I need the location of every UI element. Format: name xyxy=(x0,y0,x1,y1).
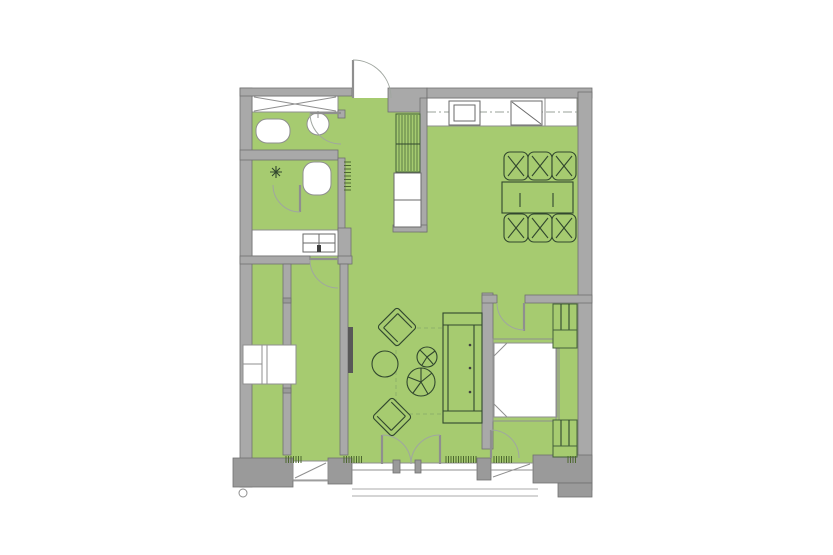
bedroom-nightstand-bottom xyxy=(553,446,577,457)
closet-room-wall-opening-2 xyxy=(283,388,291,393)
exterior-wall-top-right xyxy=(427,88,592,98)
floor-plan-svg xyxy=(0,0,833,555)
sofa-button-2 xyxy=(469,367,472,370)
sofa-button-1 xyxy=(469,344,472,347)
hall-cabinet-upper xyxy=(394,173,421,200)
bedroom-partition-wall xyxy=(482,293,493,449)
sofa-button-3 xyxy=(469,391,472,394)
floor-plan-canvas xyxy=(0,0,833,555)
bed-mattress xyxy=(494,343,557,417)
small-room-living-wall xyxy=(340,264,348,455)
rooms-top-wall-right xyxy=(338,256,352,264)
entry-threshold xyxy=(352,88,388,98)
bedroom-nightstand-top xyxy=(553,330,577,348)
closet-room-wall-opening-1 xyxy=(283,298,291,303)
wc-bottom-wall xyxy=(240,150,338,160)
bottom-wall-right-block xyxy=(533,455,592,483)
bedroom-top-wall xyxy=(525,295,592,303)
bottom-wall-left-block xyxy=(233,458,293,487)
bottom-wall-right-step xyxy=(558,483,592,497)
exterior-wall-right xyxy=(578,92,592,490)
wc-toilet xyxy=(256,119,290,143)
washing-machine-knob xyxy=(317,245,321,252)
bedroom-wardrobe-bottom xyxy=(553,420,577,446)
bedroom-top-wall-stub xyxy=(482,295,497,303)
window-mullion-2 xyxy=(415,460,421,473)
bathroom-right-wall xyxy=(338,158,345,232)
sofa xyxy=(443,313,482,423)
dining-table xyxy=(502,182,573,213)
bathroom-toilet xyxy=(303,162,331,195)
bedroom-wardrobe-top xyxy=(553,304,577,330)
tv-unit xyxy=(348,327,353,373)
site-marker xyxy=(239,489,247,497)
exterior-wall-top-left xyxy=(240,88,352,96)
window-mullion-1 xyxy=(393,460,400,473)
side-table xyxy=(372,351,398,377)
bottom-wall-pier-1 xyxy=(328,458,352,484)
rooms-top-wall-left xyxy=(240,256,310,264)
bottom-wall-pier-2 xyxy=(477,458,491,480)
exterior-wall-left xyxy=(240,88,252,487)
hall-cabinet-lower xyxy=(394,200,421,227)
